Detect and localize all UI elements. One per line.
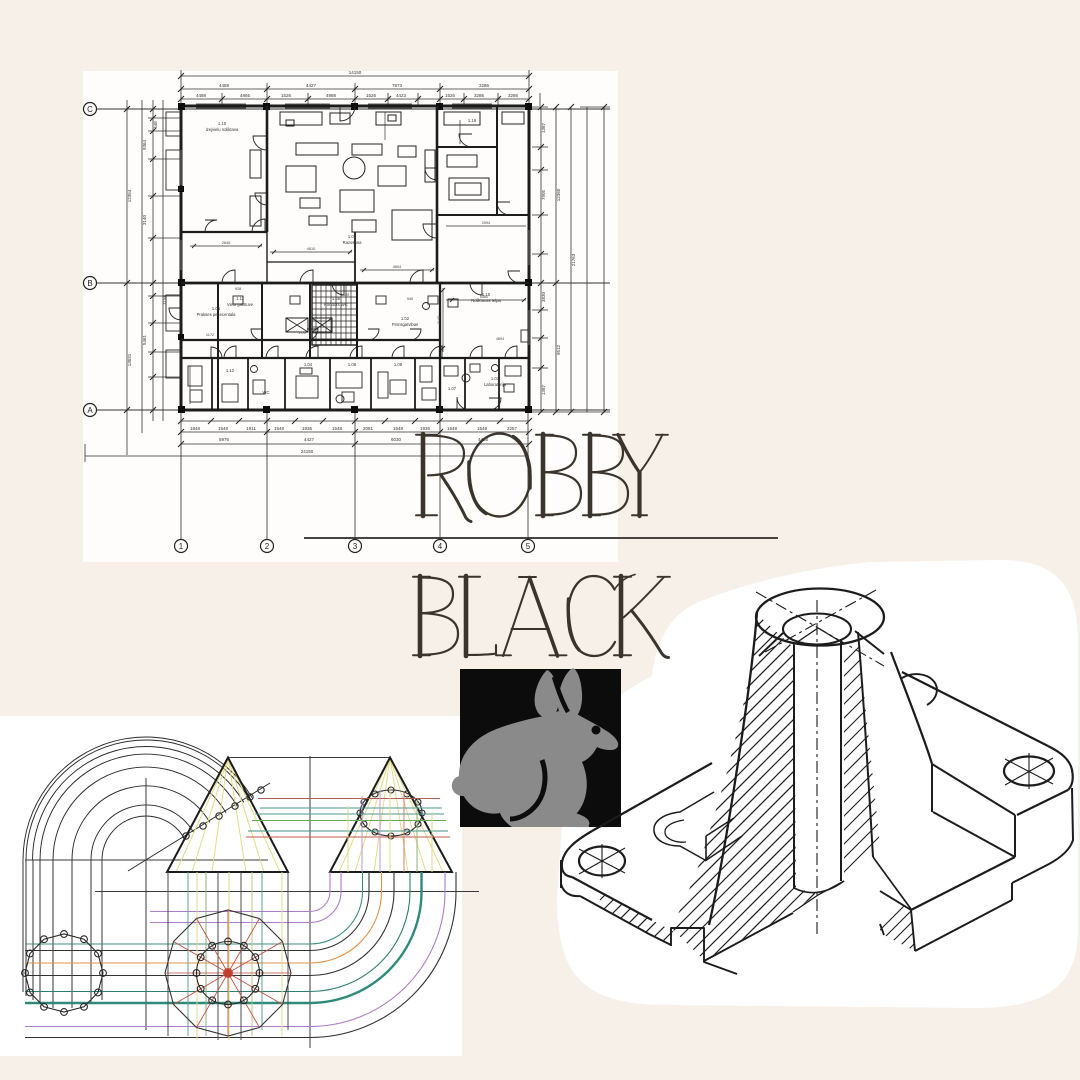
svg-text:1.16: 1.16 xyxy=(468,118,477,123)
svg-text:Pirmsgatvibas: Pirmsgatvibas xyxy=(392,322,418,327)
svg-text:4488: 4488 xyxy=(196,93,207,98)
svg-text:2081: 2081 xyxy=(363,426,374,431)
svg-text:1172: 1172 xyxy=(206,333,214,337)
svg-text:1526: 1526 xyxy=(366,93,377,98)
svg-text:1420: 1420 xyxy=(341,293,349,297)
svg-text:448: 448 xyxy=(153,121,158,129)
svg-text:4865: 4865 xyxy=(240,93,251,98)
svg-text:14150: 14150 xyxy=(349,70,362,75)
svg-text:1548: 1548 xyxy=(393,426,404,431)
svg-text:12360: 12360 xyxy=(556,188,561,201)
svg-text:928: 928 xyxy=(235,287,241,291)
svg-text:A: A xyxy=(87,406,93,415)
svg-text:9512: 9512 xyxy=(556,344,561,355)
svg-text:1.11: 1.11 xyxy=(236,296,245,301)
svg-text:2594: 2594 xyxy=(482,221,490,225)
svg-text:1.15: 1.15 xyxy=(482,292,491,297)
svg-text:5: 5 xyxy=(526,542,531,551)
svg-text:1.07: 1.07 xyxy=(448,386,457,391)
svg-text:Laboratorija: Laboratorija xyxy=(484,382,507,387)
svg-text:1936: 1936 xyxy=(420,426,431,431)
svg-text:1936: 1936 xyxy=(302,426,313,431)
svg-text:2: 2 xyxy=(265,542,270,551)
svg-text:4810: 4810 xyxy=(307,247,315,251)
svg-text:1.05: 1.05 xyxy=(332,296,341,301)
svg-text:1548: 1548 xyxy=(218,426,229,431)
svg-text:1848: 1848 xyxy=(190,426,201,431)
svg-text:1387: 1387 xyxy=(541,122,546,133)
svg-text:1526: 1526 xyxy=(281,93,292,98)
svg-text:6030: 6030 xyxy=(391,437,402,442)
svg-text:Prakses pececentala: Prakses pececentala xyxy=(197,312,237,317)
svg-text:4427: 4427 xyxy=(304,437,315,442)
svg-text:1.02: 1.02 xyxy=(401,316,410,321)
svg-text:12364: 12364 xyxy=(127,189,132,202)
svg-text:2257: 2257 xyxy=(507,426,518,431)
svg-text:1548: 1548 xyxy=(447,426,458,431)
svg-text:4894: 4894 xyxy=(496,337,504,341)
svg-text:C: C xyxy=(87,105,93,114)
svg-text:4: 4 xyxy=(438,542,443,551)
svg-text:1.12: 1.12 xyxy=(226,368,235,373)
svg-text:1.10: 1.10 xyxy=(218,121,227,126)
svg-text:9364: 9364 xyxy=(142,139,147,150)
svg-text:Razosana: Razosana xyxy=(343,240,363,245)
svg-text:2845: 2845 xyxy=(222,241,230,245)
svg-text:4427: 4427 xyxy=(306,83,317,88)
svg-text:1: 1 xyxy=(179,542,184,551)
svg-text:940: 940 xyxy=(407,297,413,301)
svg-text:1526: 1526 xyxy=(445,93,456,98)
svg-text:1911: 1911 xyxy=(246,426,256,431)
svg-text:3140: 3140 xyxy=(142,214,147,225)
svg-text:5461: 5461 xyxy=(142,334,147,345)
svg-text:3286: 3286 xyxy=(479,83,490,88)
svg-text:3286: 3286 xyxy=(474,93,485,98)
svg-text:4423: 4423 xyxy=(396,93,407,98)
svg-text:5976: 5976 xyxy=(219,437,230,442)
svg-text:4604: 4604 xyxy=(393,265,401,269)
svg-text:13031: 13031 xyxy=(127,353,132,366)
svg-text:4988: 4988 xyxy=(326,93,337,98)
svg-text:WC: WC xyxy=(263,390,270,395)
svg-text:24150: 24150 xyxy=(301,449,314,454)
svg-text:1549: 1549 xyxy=(477,426,488,431)
svg-text:3: 3 xyxy=(353,542,358,551)
svg-text:21763: 21763 xyxy=(571,253,576,266)
svg-text:B: B xyxy=(87,279,92,288)
svg-text:3830: 3830 xyxy=(541,291,546,302)
svg-text:4488: 4488 xyxy=(219,83,230,88)
svg-text:1.04: 1.04 xyxy=(304,362,313,367)
svg-text:1387: 1387 xyxy=(541,384,546,395)
svg-text:1548: 1548 xyxy=(274,426,285,431)
svg-text:1.08: 1.08 xyxy=(348,362,357,367)
svg-text:1.06: 1.06 xyxy=(212,306,221,311)
svg-text:7905: 7905 xyxy=(541,189,546,200)
svg-text:1.09: 1.09 xyxy=(394,362,403,367)
svg-text:1.01: 1.01 xyxy=(348,234,357,239)
svg-text:7873: 7873 xyxy=(392,83,403,88)
svg-text:1.03: 1.03 xyxy=(491,376,500,381)
svg-text:3286: 3286 xyxy=(508,93,519,98)
svg-text:1548: 1548 xyxy=(332,426,343,431)
svg-text:1.05: 1.05 xyxy=(298,331,305,335)
svg-text:Noliktavas telpa: Noliktavas telpa xyxy=(471,298,501,303)
svg-text:3140: 3140 xyxy=(437,316,441,324)
svg-text:Vielu gatstuve: Vielu gatstuve xyxy=(227,302,254,307)
svg-text:Koridors WC: Koridors WC xyxy=(324,302,348,307)
svg-text:izejvielu noliktava: izejvielu noliktava xyxy=(206,127,239,132)
